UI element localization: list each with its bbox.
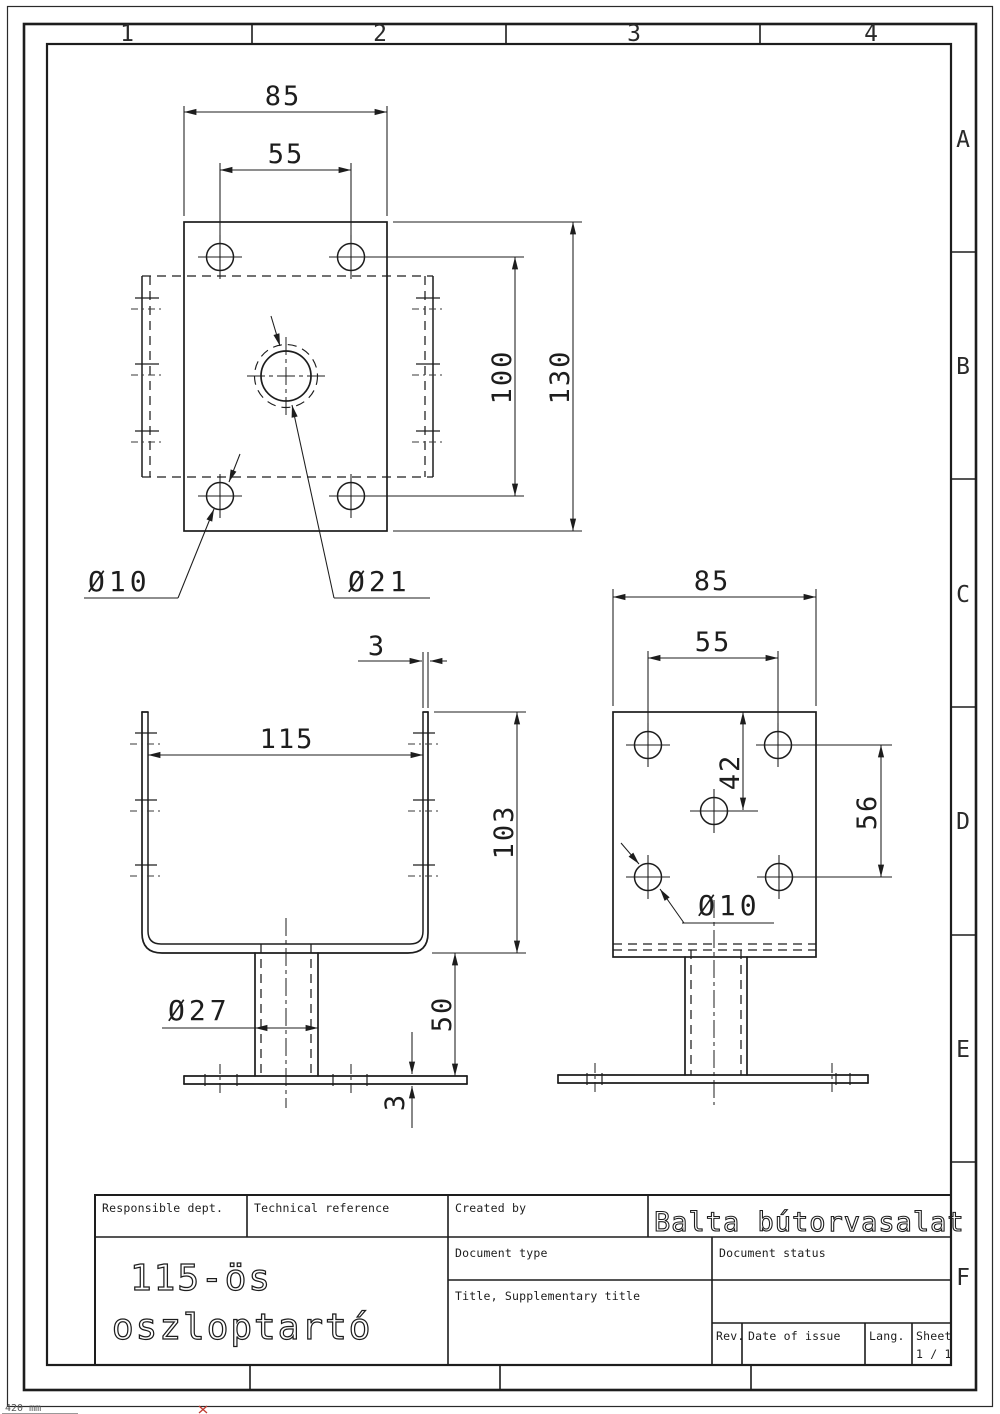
weld-ticks xyxy=(131,298,444,442)
zone-col-4: 4 xyxy=(864,21,878,47)
zone-row-e: E xyxy=(956,1037,970,1063)
svg-text:115: 115 xyxy=(260,724,315,755)
dim-front-tube-diameter: Ø27 xyxy=(162,994,318,1028)
leader-hole-diameter: Ø10 xyxy=(84,454,240,598)
created-by-label: Created by xyxy=(455,1201,526,1215)
zone-row-c: C xyxy=(956,582,970,608)
front-view: 3 115 103 50 3 Ø27 xyxy=(130,631,526,1128)
svg-text:3: 3 xyxy=(368,631,386,662)
top-view: 85 55 100 130 Ø10 xyxy=(84,81,582,598)
dim-front-base-thickness: 3 xyxy=(380,1032,412,1128)
base-flange-side xyxy=(558,1063,868,1095)
dim-front-inner-width: 115 xyxy=(148,724,423,755)
zone-col-2: 2 xyxy=(373,21,387,47)
leader-side-hole-diameter: Ø10 xyxy=(621,843,774,923)
lang-label: Lang. xyxy=(869,1329,905,1343)
part-title-line1: 115-ös xyxy=(130,1258,272,1299)
base-flange-front xyxy=(184,1064,467,1096)
dim-side-holes-y: 56 xyxy=(793,745,892,877)
dim-front-height: 103 xyxy=(432,712,526,953)
rev-label: Rev. xyxy=(716,1329,745,1343)
date-of-issue-label: Date of issue xyxy=(748,1329,841,1343)
svg-text:50: 50 xyxy=(427,996,458,1033)
svg-text:Ø27: Ø27 xyxy=(168,994,231,1027)
svg-text:Ø21: Ø21 xyxy=(348,565,411,598)
sheet-label: Sheet xyxy=(916,1329,952,1343)
title-block: Responsible dept. Technical reference Cr… xyxy=(95,1195,965,1365)
dim-side-holes-x: 55 xyxy=(648,627,778,738)
svg-text:56: 56 xyxy=(852,794,883,831)
dim-top-holes-x: 55 xyxy=(220,139,351,240)
cad-drawing: 1 2 3 4 A B C D E F 420 mm xyxy=(0,0,1000,1414)
dim-side-top-to-center: 42 xyxy=(715,712,746,810)
part-title-line2: oszloptartó xyxy=(112,1307,372,1348)
drawing-sheet: 1 2 3 4 A B C D E F 420 mm xyxy=(0,0,1000,1414)
center-hole xyxy=(247,337,325,415)
svg-text:85: 85 xyxy=(694,566,731,597)
dim-top-holes-y: 100 xyxy=(366,257,524,496)
svg-text:3: 3 xyxy=(380,1093,411,1111)
technical-reference-label: Technical reference xyxy=(254,1201,389,1215)
svg-text:Ø10: Ø10 xyxy=(698,889,761,922)
sheet-number: 1 / 1 xyxy=(916,1347,952,1361)
document-type-label: Document type xyxy=(455,1246,548,1260)
title-supplementary-label: Title, Supplementary title xyxy=(455,1289,640,1303)
svg-text:55: 55 xyxy=(695,627,732,658)
svg-text:Ø10: Ø10 xyxy=(88,565,151,598)
svg-text:103: 103 xyxy=(489,805,520,860)
sheet-size-note: 420 mm xyxy=(5,1403,41,1414)
zone-col-1: 1 xyxy=(120,21,134,47)
zone-row-a: A xyxy=(956,127,970,153)
svg-text:130: 130 xyxy=(545,350,576,405)
dim-front-tube-height: 50 xyxy=(427,953,458,1076)
responsible-dept-label: Responsible dept. xyxy=(102,1201,223,1215)
zone-row-f: F xyxy=(956,1265,970,1291)
svg-text:85: 85 xyxy=(265,81,302,112)
zone-row-b: B xyxy=(956,354,970,380)
leader-center-hole-diameter: Ø21 xyxy=(271,316,430,598)
zone-row-d: D xyxy=(956,809,970,835)
svg-text:100: 100 xyxy=(487,350,518,405)
side-holes xyxy=(626,723,801,899)
dim-front-wall: 3 xyxy=(358,631,447,708)
zone-col-3: 3 xyxy=(627,21,641,47)
svg-text:42: 42 xyxy=(715,754,746,791)
document-status-label: Document status xyxy=(719,1246,826,1260)
svg-text:55: 55 xyxy=(268,139,305,170)
side-view: 85 55 42 56 Ø10 xyxy=(558,566,892,1105)
company-name: Balta bútorvasalat xyxy=(654,1207,965,1238)
